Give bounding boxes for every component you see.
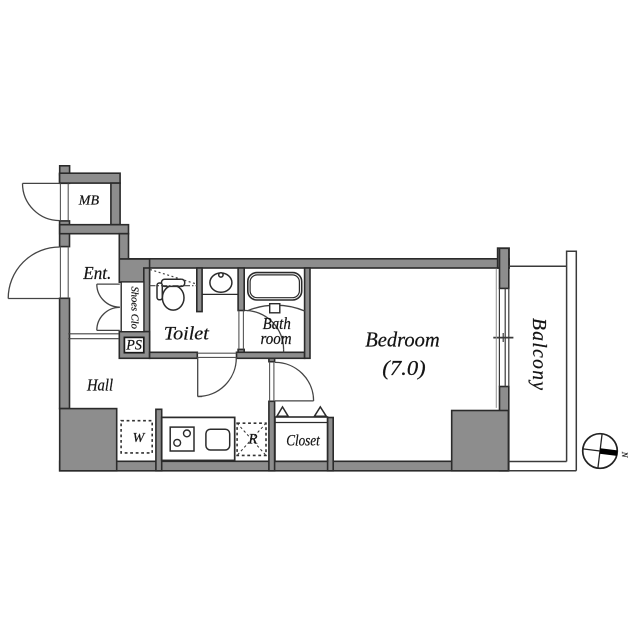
svg-text:Balcony: Balcony — [528, 318, 549, 390]
svg-text:R: R — [247, 432, 257, 448]
svg-text:PS: PS — [125, 338, 142, 354]
svg-text:room: room — [260, 329, 291, 348]
svg-text:(7.0): (7.0) — [382, 356, 425, 380]
svg-text:MB: MB — [78, 194, 100, 209]
svg-text:Shoes Clo: Shoes Clo — [128, 286, 140, 329]
svg-text:Closet: Closet — [286, 432, 320, 449]
svg-text:Toilet: Toilet — [164, 324, 210, 345]
svg-text:Hall: Hall — [86, 375, 113, 394]
svg-text:Ent.: Ent. — [82, 263, 111, 283]
svg-text:W: W — [133, 431, 146, 446]
svg-text:Bedroom: Bedroom — [365, 327, 440, 351]
